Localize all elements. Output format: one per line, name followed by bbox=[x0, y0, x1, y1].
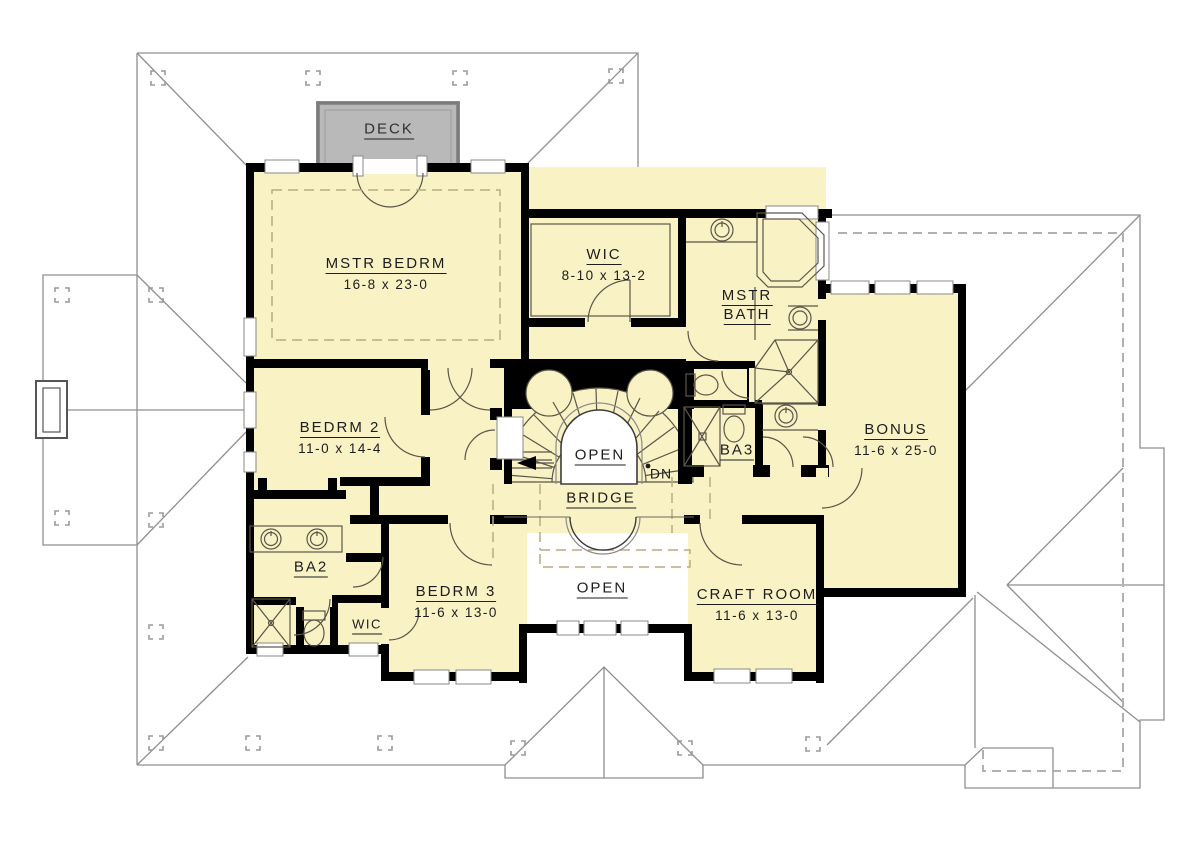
mstr-bath-label: MSTR BATH bbox=[722, 287, 773, 325]
dn-label: DN bbox=[650, 466, 672, 483]
wic-small-label: WIC bbox=[352, 616, 382, 635]
bonus-label: BONUS 11-6 x 25-0 bbox=[854, 421, 938, 459]
deck-label: DECK bbox=[364, 121, 414, 140]
ba2-label: BA2 bbox=[294, 559, 328, 578]
floor-plan-page: DECK MSTR BEDRM 16-8 x 23-0 WIC 8-10 x 1… bbox=[0, 0, 1200, 843]
open-stairwell-label: OPEN bbox=[575, 447, 626, 466]
open-to-below-area bbox=[527, 533, 684, 624]
bedrm3-label: BEDRM 3 11-6 x 13-0 bbox=[414, 583, 498, 621]
bedrm2-label: BEDRM 2 11-0 x 14-4 bbox=[298, 419, 382, 457]
mstr-bedrm-label: MSTR BEDRM 16-8 x 23-0 bbox=[326, 255, 447, 293]
open-below-label: OPEN bbox=[577, 580, 628, 599]
floor-plan-drawing bbox=[0, 0, 1200, 843]
wic-master-label: WIC 8-10 x 13-2 bbox=[562, 246, 647, 284]
bridge-label: BRIDGE bbox=[566, 490, 636, 509]
craft-room-label: CRAFT ROOM 11-6 x 13-0 bbox=[697, 586, 818, 624]
ba3-label: BA3 bbox=[720, 442, 754, 461]
